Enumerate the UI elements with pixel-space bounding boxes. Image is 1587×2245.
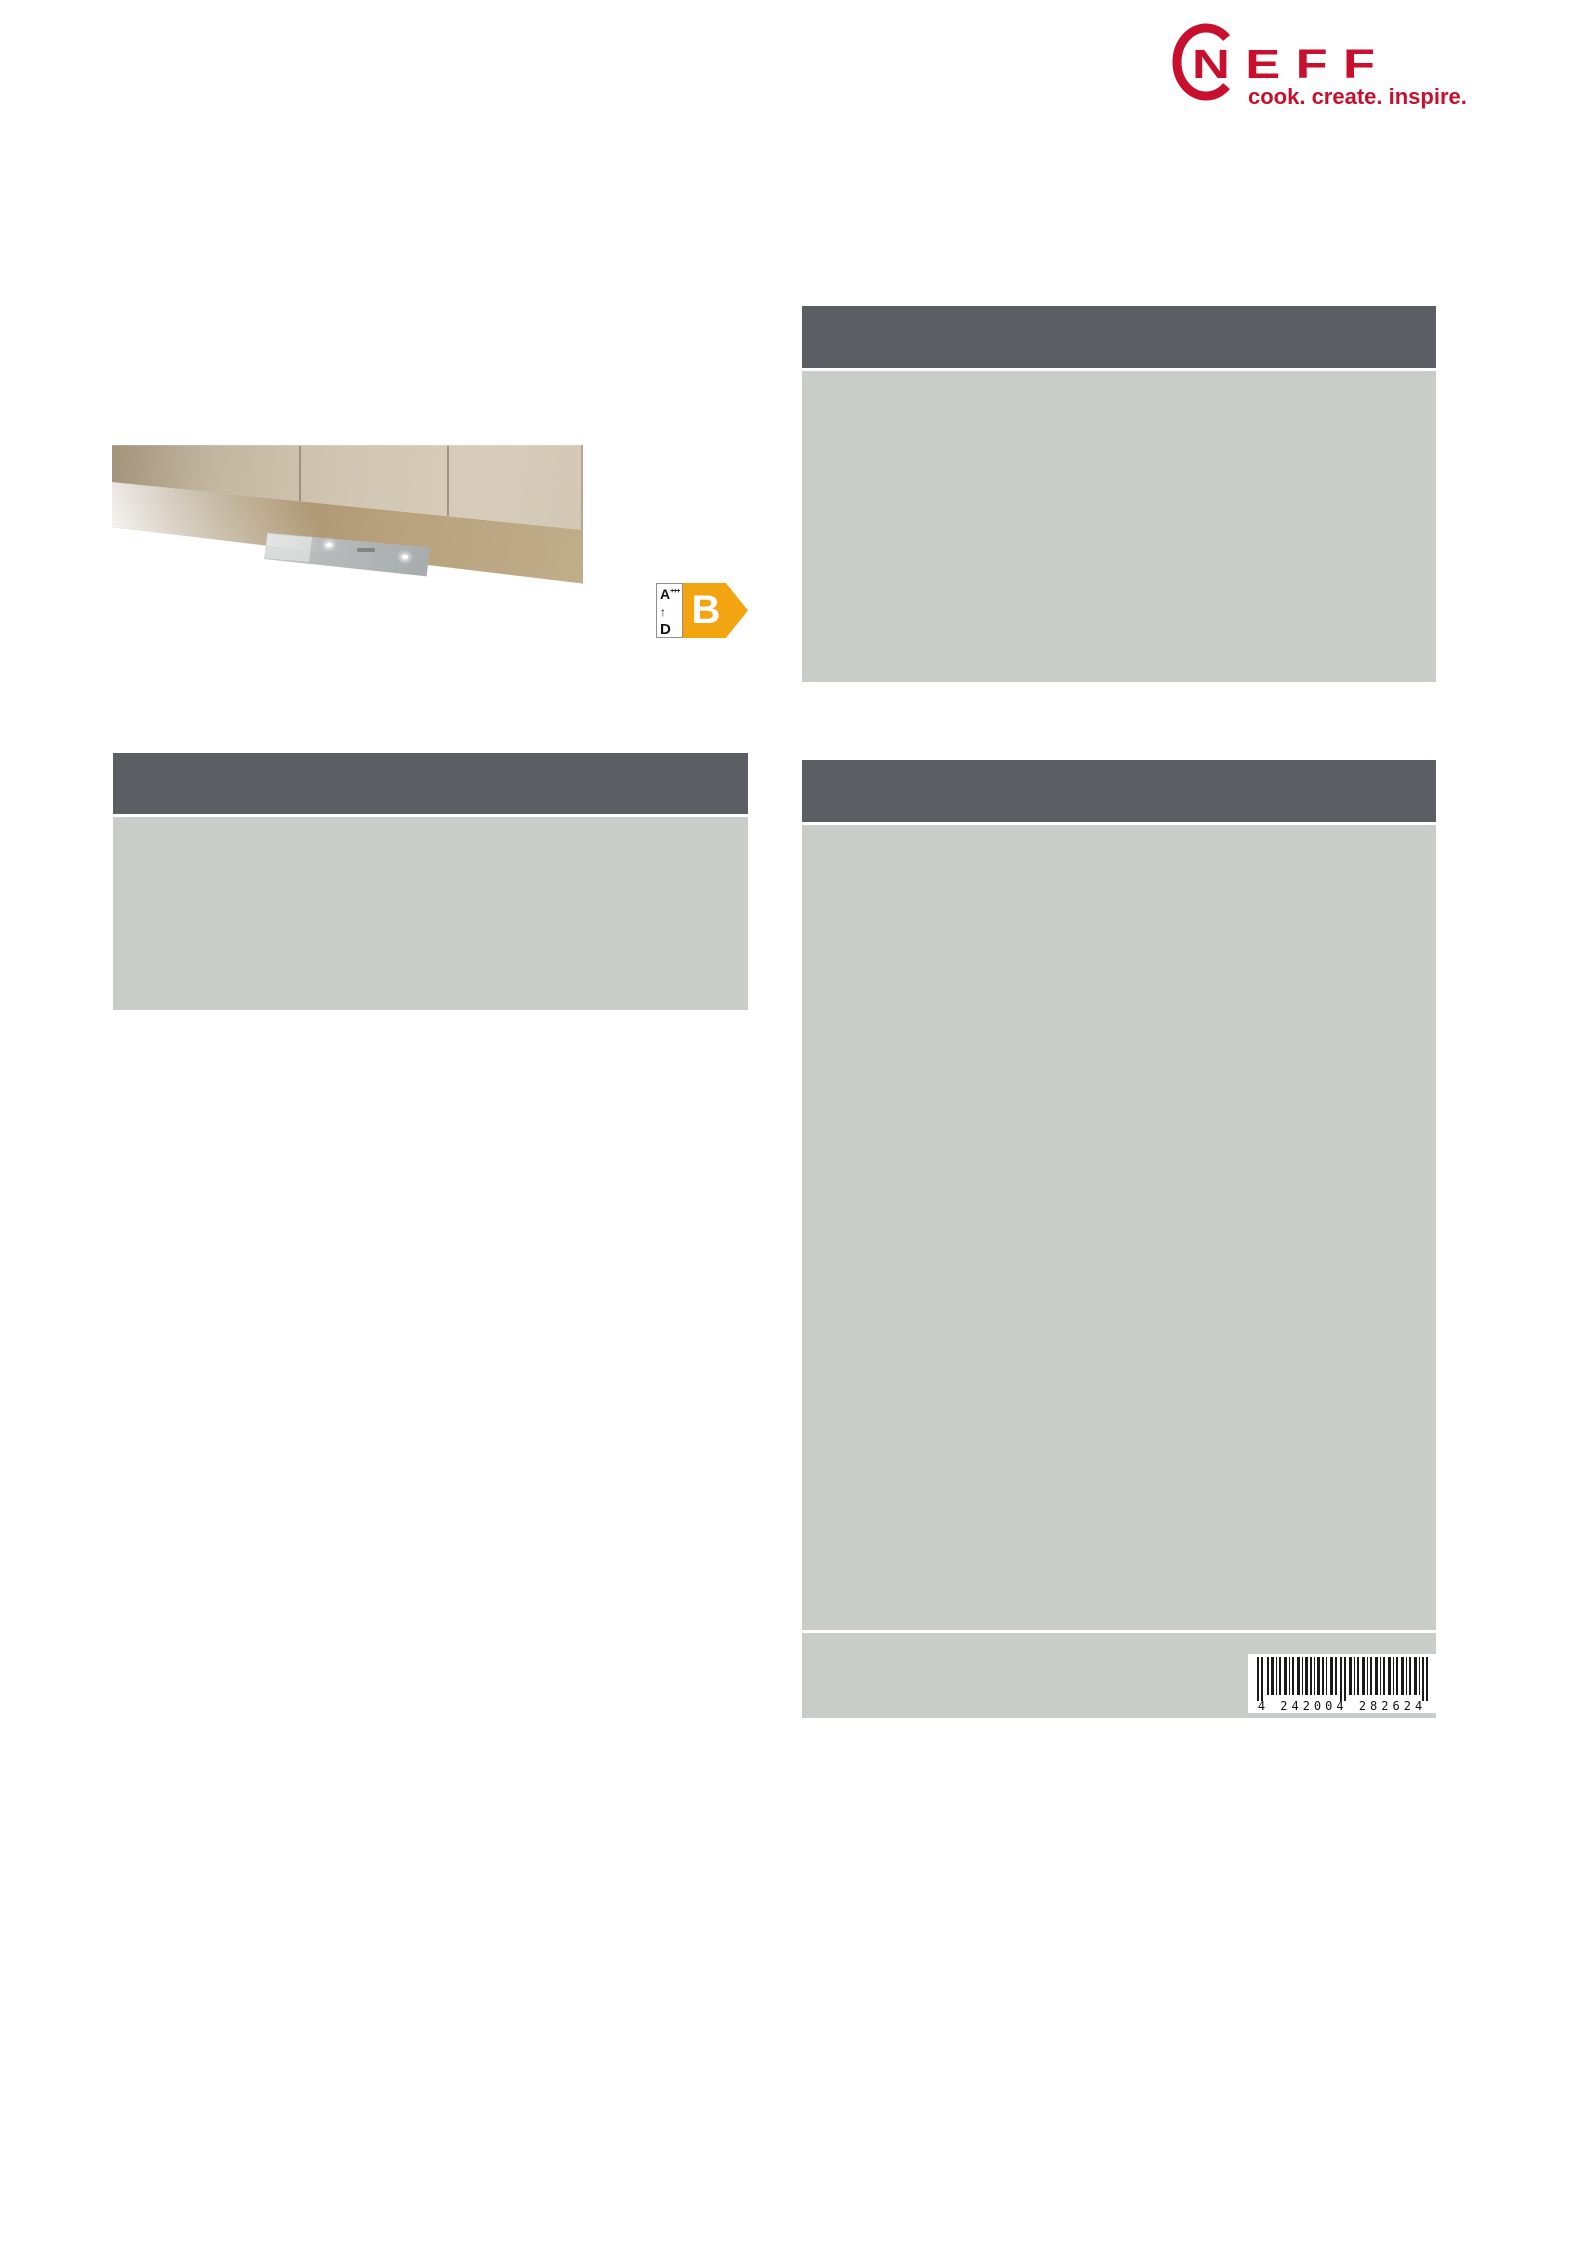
- neff-logo: NEFF cook. create. inspire.: [1168, 14, 1498, 124]
- panel-body: [802, 825, 1436, 1630]
- panel-footer: 4 242004 282624: [802, 1633, 1436, 1718]
- energy-best-letter: A: [660, 586, 670, 602]
- spec-panel-bottom-right: 4 242004 282624: [802, 760, 1436, 1718]
- energy-best-class: A+++: [660, 586, 682, 600]
- datasheet-page: NEFF cook. create. inspire. A+++ ↑ D B: [0, 0, 1587, 2245]
- energy-scale-box: A+++ ↑ D: [656, 583, 683, 638]
- energy-best-suffix: +++: [670, 588, 679, 595]
- panel-header: [113, 753, 748, 814]
- energy-rating-label: A+++ ↑ D B: [656, 583, 748, 638]
- energy-rating-letter: B: [683, 587, 729, 634]
- cabinet-door-seam: [299, 446, 301, 501]
- barcode-digits: 4 242004 282624: [1248, 1700, 1436, 1712]
- panel-header: [802, 760, 1436, 822]
- energy-worst-class: D: [660, 623, 682, 636]
- energy-rating-arrow: B: [683, 583, 748, 638]
- neff-logo-tagline: cook. create. inspire.: [1248, 86, 1467, 108]
- cabinet-door-seam: [447, 446, 449, 516]
- panel-body: [802, 371, 1436, 682]
- panel-header: [802, 306, 1436, 368]
- neff-logo-wordmark: NEFF: [1192, 44, 1390, 85]
- energy-range-arrow-icon: ↑: [660, 607, 682, 617]
- product-photo: [112, 443, 583, 588]
- spec-panel-top-right: [802, 306, 1436, 682]
- spec-panel-left: [113, 753, 748, 1010]
- ean-barcode: 4 242004 282624: [1248, 1654, 1436, 1713]
- barcode-bars-icon: [1253, 1657, 1431, 1701]
- panel-body: [113, 817, 748, 1010]
